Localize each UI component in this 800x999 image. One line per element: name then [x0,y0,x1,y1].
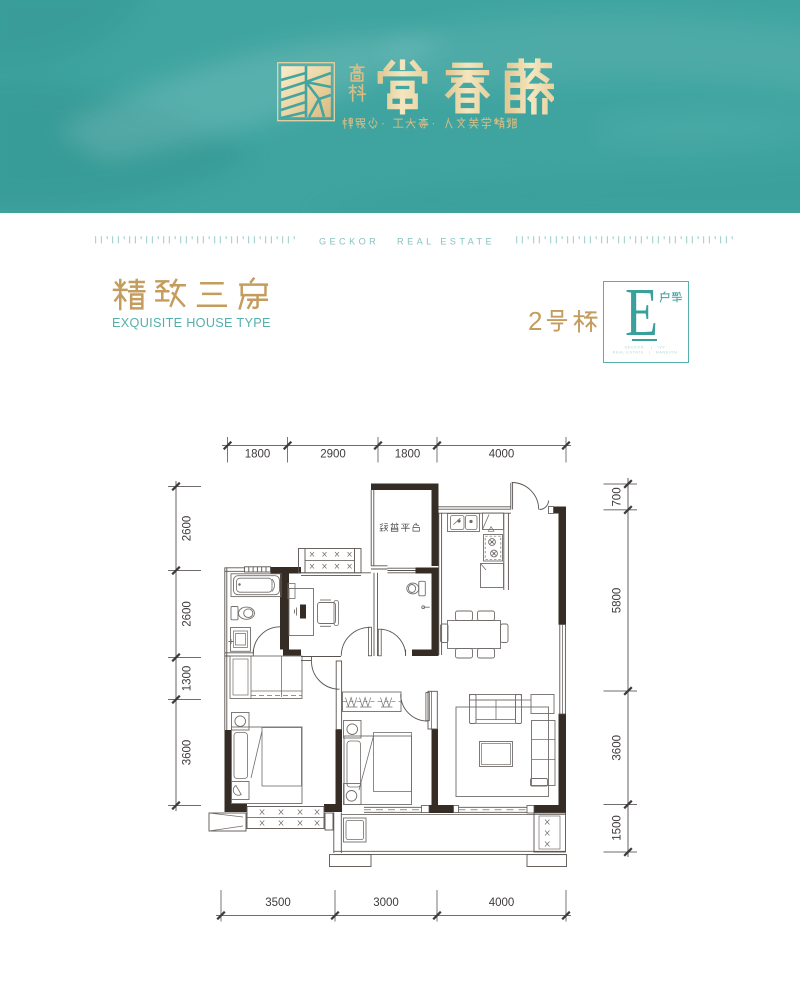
svg-text:3600: 3600 [612,735,624,761]
svg-text:3600: 3600 [182,740,194,766]
svg-text:2600: 2600 [182,516,194,542]
svg-text:GECKOR REAL ESTATE: GECKOR REAL ESTATE [319,237,495,247]
svg-text:5800: 5800 [612,588,624,614]
svg-text:3500: 3500 [265,897,291,909]
svg-text:2600: 2600 [182,601,194,627]
svg-text:1300: 1300 [182,666,194,692]
svg-text:4000: 4000 [489,897,515,909]
svg-text:3000: 3000 [373,897,399,909]
svg-text:1800: 1800 [245,449,271,461]
svg-text:700: 700 [612,487,624,506]
svg-text:4000: 4000 [489,449,515,461]
svg-text:2: 2 [528,306,542,336]
svg-text:1800: 1800 [395,449,421,461]
svg-text:1500: 1500 [612,815,624,841]
svg-text:2900: 2900 [320,449,346,461]
